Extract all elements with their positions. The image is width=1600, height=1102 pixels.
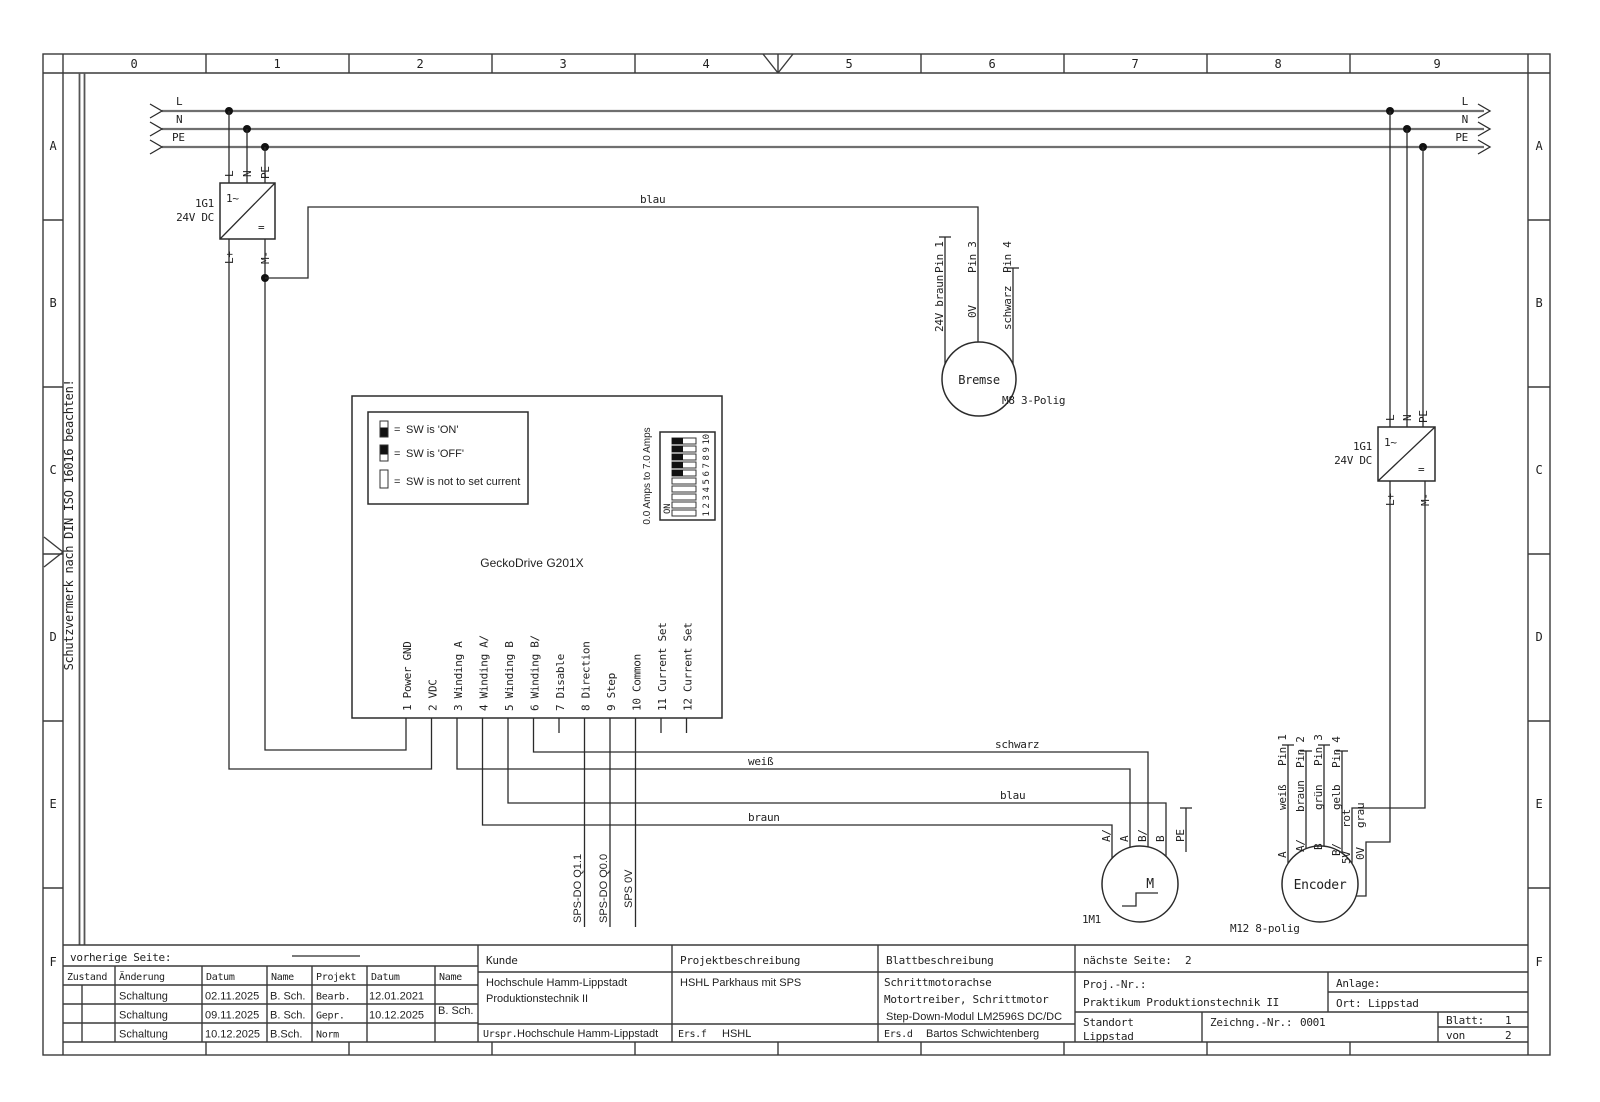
brake-w3-color: schwarz <box>1001 286 1014 330</box>
sps-wires: SPS-DO Q1.1 SPS-DO Q0.0 SPS 0V <box>572 718 636 927</box>
psu2-in-pe: PE <box>1417 410 1430 423</box>
zeichnr-value: 0001 <box>1300 1016 1325 1029</box>
col-label: 8 <box>1275 57 1282 71</box>
motor-pin-b: B <box>1154 835 1167 842</box>
motor-ref: 1M1 <box>1082 913 1101 926</box>
motor-pin-pe: PE <box>1174 829 1187 842</box>
pin-label: 7 Disable <box>554 654 567 711</box>
brake-w1-color: 24V braun <box>933 275 946 332</box>
row-label: E <box>50 797 57 811</box>
row-label: B <box>50 296 57 310</box>
geckodrive: GeckoDrive G201X = SW is 'ON' = SW is 'O… <box>352 396 722 733</box>
col-label: 4 <box>703 57 710 71</box>
pin-label: 1 Power GND <box>401 641 414 711</box>
wire-blau-brake: blau <box>265 193 978 342</box>
proj-gepr: Gepr. <box>316 1011 345 1022</box>
dip-num: 1 <box>702 511 712 516</box>
enc-color-gruen: grün <box>1312 785 1325 810</box>
anlage-label: Anlage: <box>1336 977 1380 990</box>
pin-label: 6 Winding B/ <box>529 635 542 711</box>
psu2: 1~ = 1G1 24V DC L N PE L+ M- <box>1334 111 1435 896</box>
enc-fn-a_: A/ <box>1294 839 1307 852</box>
kunde-line1: Hochschule Hamm-Lippstadt <box>486 977 627 989</box>
blatt-value: 1 <box>1505 1014 1511 1027</box>
urspr-label: Urspr. <box>483 1029 517 1040</box>
psu1-ac: 1~ <box>226 192 239 205</box>
encoder: Encoder M12 8-polig A A/ B B/ 5V 0V weiß… <box>1230 734 1367 935</box>
proj-datum-gepr: 10.12.2025 <box>369 1010 424 1022</box>
row-datum: 09.11.2025 <box>205 1010 259 1022</box>
pin-label: 9 Step <box>605 673 618 711</box>
motor-pin-a: A <box>1118 835 1131 842</box>
legend-eq: = <box>394 424 400 436</box>
blatt-line2: Motortreiber, Schrittmotor <box>884 993 1049 1006</box>
sps-q00-label: SPS-DO Q0.0 <box>598 854 610 923</box>
enc-fn-b: B <box>1312 843 1325 850</box>
brake-w3-pin: Pin 4 <box>1001 241 1014 273</box>
ort-label: Ort: <box>1336 997 1361 1010</box>
motor: M 1M1 A/ A B/ B PE <box>1082 808 1192 926</box>
brake-w2-pin: Pin 3 <box>966 241 979 273</box>
bottom-ticks <box>206 1042 1350 1055</box>
th-datum2: Datum <box>371 972 400 983</box>
th-name: Name <box>271 972 294 983</box>
row-label: D <box>1536 630 1543 644</box>
projnr-value: Praktikum Produktionstechnik II <box>1083 996 1279 1009</box>
legend-off: SW is 'OFF' <box>406 448 464 460</box>
dip-on-label: ON <box>663 504 673 514</box>
pin-label: 4 Winding A/ <box>478 635 491 711</box>
enc-color-grau: grau <box>1354 803 1367 828</box>
encoder-label: Encoder <box>1294 878 1347 893</box>
psu1-in-n: N <box>241 171 254 177</box>
dip-num: 9 <box>702 447 712 452</box>
ersf-label: Ers.f <box>678 1029 707 1040</box>
dip-num: 2 <box>702 503 712 508</box>
enc-color-braun: braun <box>1294 780 1307 812</box>
legend-eq: = <box>394 448 400 460</box>
dip-amps-label: 0.0 Amps to 7.0 Amps <box>642 427 653 524</box>
proj-bearb: Bearb. <box>316 992 350 1003</box>
enc-fn-a: A <box>1276 851 1289 858</box>
row-label: C <box>1536 463 1543 477</box>
enc-pin-3: Pin 3 <box>1312 734 1325 766</box>
row-datum: 10.12.2025 <box>205 1029 260 1041</box>
th-projekt: Projekt <box>316 972 356 983</box>
prev-page-label: vorherige Seite: <box>70 951 171 964</box>
row-label: F <box>50 955 57 969</box>
row-label: F <box>1536 955 1543 969</box>
dip-num: 10 <box>702 434 712 444</box>
col-label: 1 <box>274 57 281 71</box>
enc-color-gelb: gelb <box>1330 785 1343 810</box>
th-aenderung: Änderung <box>119 970 165 983</box>
projektbeschreibung-value: HSHL Parkhaus mit SPS <box>680 977 801 989</box>
col-label: 2 <box>417 57 424 71</box>
motor-wires: schwarz weiß blau braun <box>457 718 1166 858</box>
row-label: B <box>1536 296 1543 310</box>
sps-q11-label: SPS-DO Q1.1 <box>572 854 584 923</box>
kunde-line2: Produktionstechnik II <box>486 993 588 1005</box>
row-label: A <box>50 139 58 153</box>
ersd-value: Bartos Schwichtenberg <box>926 1028 1039 1040</box>
enc-color-rot: rot <box>1340 809 1353 828</box>
von-value: 2 <box>1505 1029 1511 1042</box>
psu2-dc: = <box>1418 463 1425 476</box>
pin-label: 2 VDC <box>427 679 440 711</box>
standort-label: Standort <box>1083 1016 1134 1029</box>
dip-legend: = SW is 'ON' = SW is 'OFF' = SW is not t… <box>368 412 528 504</box>
psu1-volt: 24V DC <box>176 211 214 224</box>
motor-pin-a_: A/ <box>1100 829 1113 842</box>
schematic-canvas: 0 1 2 3 4 5 6 7 8 9 A B C D E F A B C D … <box>0 0 1600 1102</box>
proj-name-gepr: B. Sch. <box>438 1005 473 1017</box>
power-rails: L N PE L N PE <box>150 95 1490 154</box>
wire-weiss-label: weiß <box>748 755 774 768</box>
blatt-line3: Step-Down-Modul LM2596S DC/DC <box>886 1011 1062 1023</box>
column-ticks <box>206 54 1350 73</box>
dip-num: 4 <box>702 487 712 492</box>
geckodrive-title: GeckoDrive G201X <box>480 556 583 570</box>
dip-num: 8 <box>702 455 712 460</box>
row-label: D <box>50 630 57 644</box>
encoder-connector: M12 8-polig <box>1230 922 1300 935</box>
enc-fn-0v: 0V <box>1354 847 1367 860</box>
th-datum: Datum <box>206 972 235 983</box>
brake-label: Bremse <box>958 373 1000 387</box>
col-label: 0 <box>131 57 138 71</box>
pin-label: 3 Winding A <box>452 641 465 711</box>
next-page-value: 2 <box>1185 954 1191 967</box>
psu2-volt: 24V DC <box>1334 454 1372 467</box>
enc-color-weiss: weiß <box>1276 784 1289 810</box>
pin-label: 11 Current Set <box>656 622 669 711</box>
zeichnr-label: Zeichng.-Nr.: <box>1210 1016 1292 1029</box>
motor-pin-b_: B/ <box>1136 829 1149 842</box>
th-name2: Name <box>439 972 462 983</box>
blattbeschreibung-header: Blattbeschreibung <box>886 954 993 967</box>
next-page-label: nächste Seite: <box>1083 954 1172 967</box>
rail-pe-label: PE <box>172 131 185 144</box>
rail-n-label-r: N <box>1462 113 1468 126</box>
row-datum: 02.11.2025 <box>205 991 259 1003</box>
row-label: A <box>1536 139 1544 153</box>
rail-l-label: L <box>176 95 183 108</box>
enc-pin-1: Pin 1 <box>1276 734 1289 766</box>
psu1-dc: = <box>258 221 265 234</box>
brake-w1-pin: Pin 1 <box>933 241 946 273</box>
psu2-in-l: L <box>1384 414 1397 421</box>
psu1-in-l: L <box>223 170 236 177</box>
gecko-pin-labels: 1 Power GND 2 VDC 3 Winding A 4 Winding … <box>401 622 695 711</box>
legend-on: SW is 'ON' <box>406 424 458 436</box>
rail-l-label-r: L <box>1462 95 1469 108</box>
schematic-page: 0 1 2 3 4 5 6 7 8 9 A B C D E F A B C D … <box>0 0 1600 1102</box>
row-name: B. Sch. <box>270 991 305 1003</box>
enc-pin-2: Pin 2 <box>1294 736 1307 768</box>
wire-0v <box>1356 481 1390 896</box>
brake-w2-color: 0V <box>966 305 979 318</box>
proj-datum-bearb: 12.01.2021 <box>369 991 424 1003</box>
brake: Bremse M8 3-Polig 24V braun Pin 1 0V Pin… <box>933 237 1065 416</box>
row-aenderung: Schaltung <box>119 1010 168 1022</box>
row-name: B.Sch. <box>270 1029 302 1041</box>
dip-num: 5 <box>702 479 712 484</box>
proj-norm: Norm <box>316 1030 339 1041</box>
psu1: 1~ = 1G1 24V DC L N PE L+ M- <box>176 111 431 769</box>
blatt-line1: Schrittmotorachse <box>884 976 991 989</box>
dip-num: 7 <box>702 463 712 468</box>
pin-label: 5 Winding B <box>503 641 516 711</box>
psu2-ref: 1G1 <box>1353 440 1372 453</box>
psu1-in-pe: PE <box>259 166 272 179</box>
pin-label: 8 Direction <box>580 641 593 711</box>
projnr-label: Proj.-Nr.: <box>1083 978 1146 991</box>
wire-blau-label: blau <box>640 193 665 206</box>
projektbeschreibung-header: Projektbeschreibung <box>680 954 800 967</box>
centre-marker-left <box>44 537 63 567</box>
von-label: von <box>1446 1029 1465 1042</box>
enc-fn-5v: 5V <box>1340 851 1353 864</box>
drawing-frame: 0 1 2 3 4 5 6 7 8 9 A B C D E F A B C D … <box>43 54 1550 1055</box>
wire-blau2-label: blau <box>1000 789 1025 802</box>
col-label: 9 <box>1434 57 1441 71</box>
title-block: vorherige Seite: Zustand Änderung Datum … <box>63 945 1528 1043</box>
col-label: 6 <box>989 57 996 71</box>
rail-pe-label-r: PE <box>1455 131 1468 144</box>
psu2-in-n: N <box>1401 415 1414 421</box>
psu2-ac: 1~ <box>1384 436 1397 449</box>
dip-num: 3 <box>702 495 712 500</box>
row-name: B. Sch. <box>270 1010 305 1022</box>
row-label: E <box>1536 797 1543 811</box>
dip-switch: 0.0 Amps to 7.0 Amps ON 1 2 3 4 5 6 7 8 … <box>642 427 715 524</box>
ort-value: Lippstad <box>1368 997 1419 1010</box>
legend-eq: = <box>394 476 400 488</box>
col-label: 5 <box>846 57 853 71</box>
ersf-value: HSHL <box>722 1028 751 1040</box>
pin-label: 12 Current Set <box>682 622 695 711</box>
ersd-label: Ers.d <box>884 1029 913 1040</box>
motor-symbol: M <box>1146 877 1154 892</box>
sps-0v-label: SPS 0V <box>623 869 635 908</box>
protection-note: Schutzvermerk nach DIN ISO 16016 beachte… <box>62 380 76 671</box>
row-label: C <box>50 463 57 477</box>
pin-label: 10 Common <box>631 654 644 711</box>
wire-schwarz-label: schwarz <box>995 738 1039 751</box>
col-label: 7 <box>1132 57 1139 71</box>
enc-pin-4: Pin 4 <box>1330 736 1343 768</box>
legend-notset: SW is not to set current <box>406 476 520 488</box>
kunde-header: Kunde <box>486 954 518 967</box>
blatt-label: Blatt: <box>1446 1014 1484 1027</box>
urspr-value: Hochschule Hamm-Lippstadt <box>517 1028 658 1040</box>
row-aenderung: Schaltung <box>119 1029 168 1041</box>
dip-num: 6 <box>702 471 712 476</box>
th-zustand: Zustand <box>67 972 107 983</box>
wire-braun-label: braun <box>748 811 780 824</box>
row-aenderung: Schaltung <box>119 991 168 1003</box>
brake-connector: M8 3-Polig <box>1002 394 1065 407</box>
rail-n-label: N <box>176 113 182 126</box>
col-label: 3 <box>560 57 567 71</box>
standort-value: Lippstad <box>1083 1030 1134 1043</box>
psu1-ref: 1G1 <box>195 197 214 210</box>
